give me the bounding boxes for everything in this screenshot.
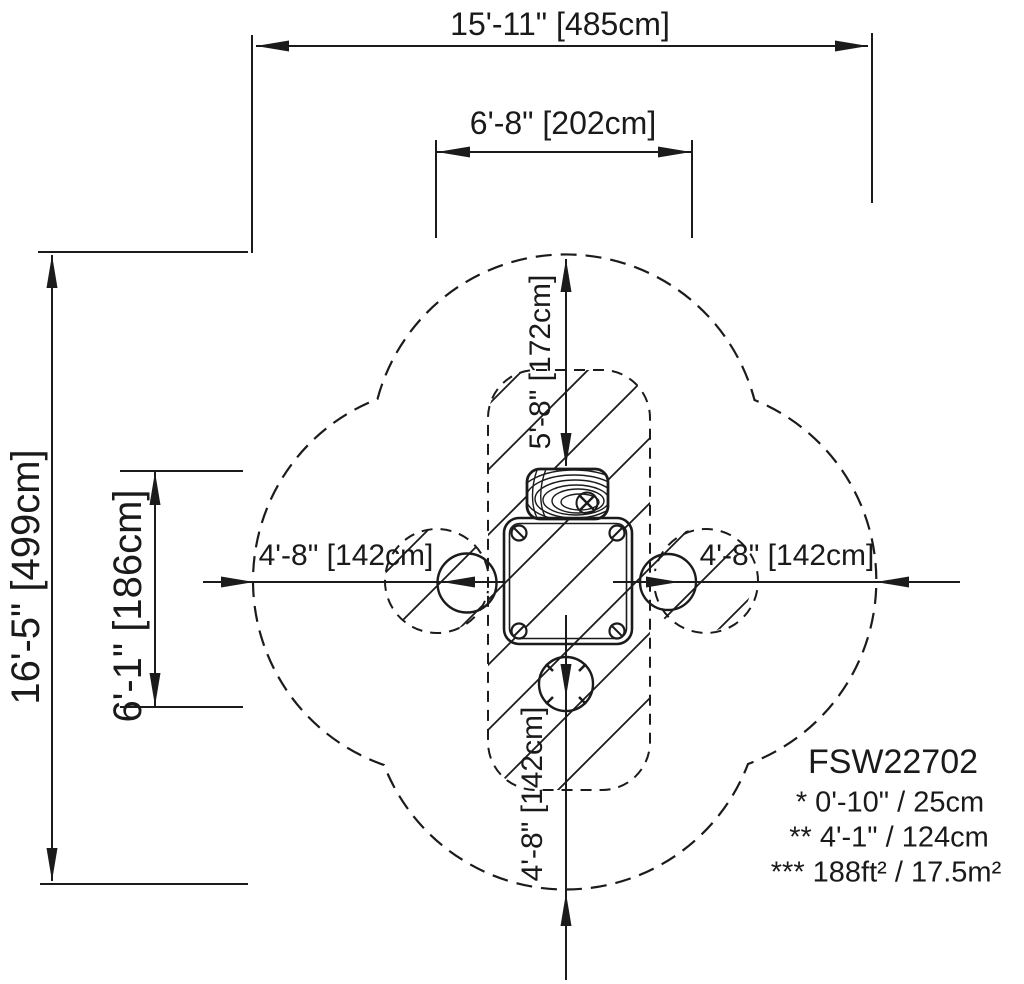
swing-plan-view-drawing: 15'-11" [485cm] 6'-8" [202cm] 16'-5" [49… [0,0,1024,984]
eyebolt-bottom-right [610,624,625,639]
left-clearance-dimension-label: 4'-8" [142cm] [259,541,434,571]
dimension-lines [52,46,868,881]
model-number-label: FSW22702 [808,745,978,779]
extension-lines [38,33,872,884]
fall-height-note-label: * 0'-10" / 25cm [796,789,984,818]
overall-height-dimension-label: 16'-5" [499cm] [6,449,46,704]
critical-height-note-label: ** 4'-1" / 124cm [789,824,989,853]
area-note-label: *** 188ft² / 17.5m² [771,859,1002,888]
eyebolt-top-left [512,526,527,541]
inner-height-dimension-label: 6'-1" [186cm] [108,489,148,722]
corner-eyebolts [512,526,625,639]
eyebolt-bottom-left [512,624,527,639]
eyebolt-top-right [610,526,625,541]
inner-width-dimension-label: 6'-8" [202cm] [470,107,656,139]
overall-width-dimension-label: 15'-11" [485cm] [450,8,670,40]
dimension-arrowheads [47,41,910,927]
bottom-clearance-dimension-label: 4'-8" [142cm] [518,707,548,882]
top-clearance-dimension-label: 5'-8" [172cm] [526,275,556,450]
right-clearance-dimension-label: 4'-8" [142cm] [700,541,875,571]
